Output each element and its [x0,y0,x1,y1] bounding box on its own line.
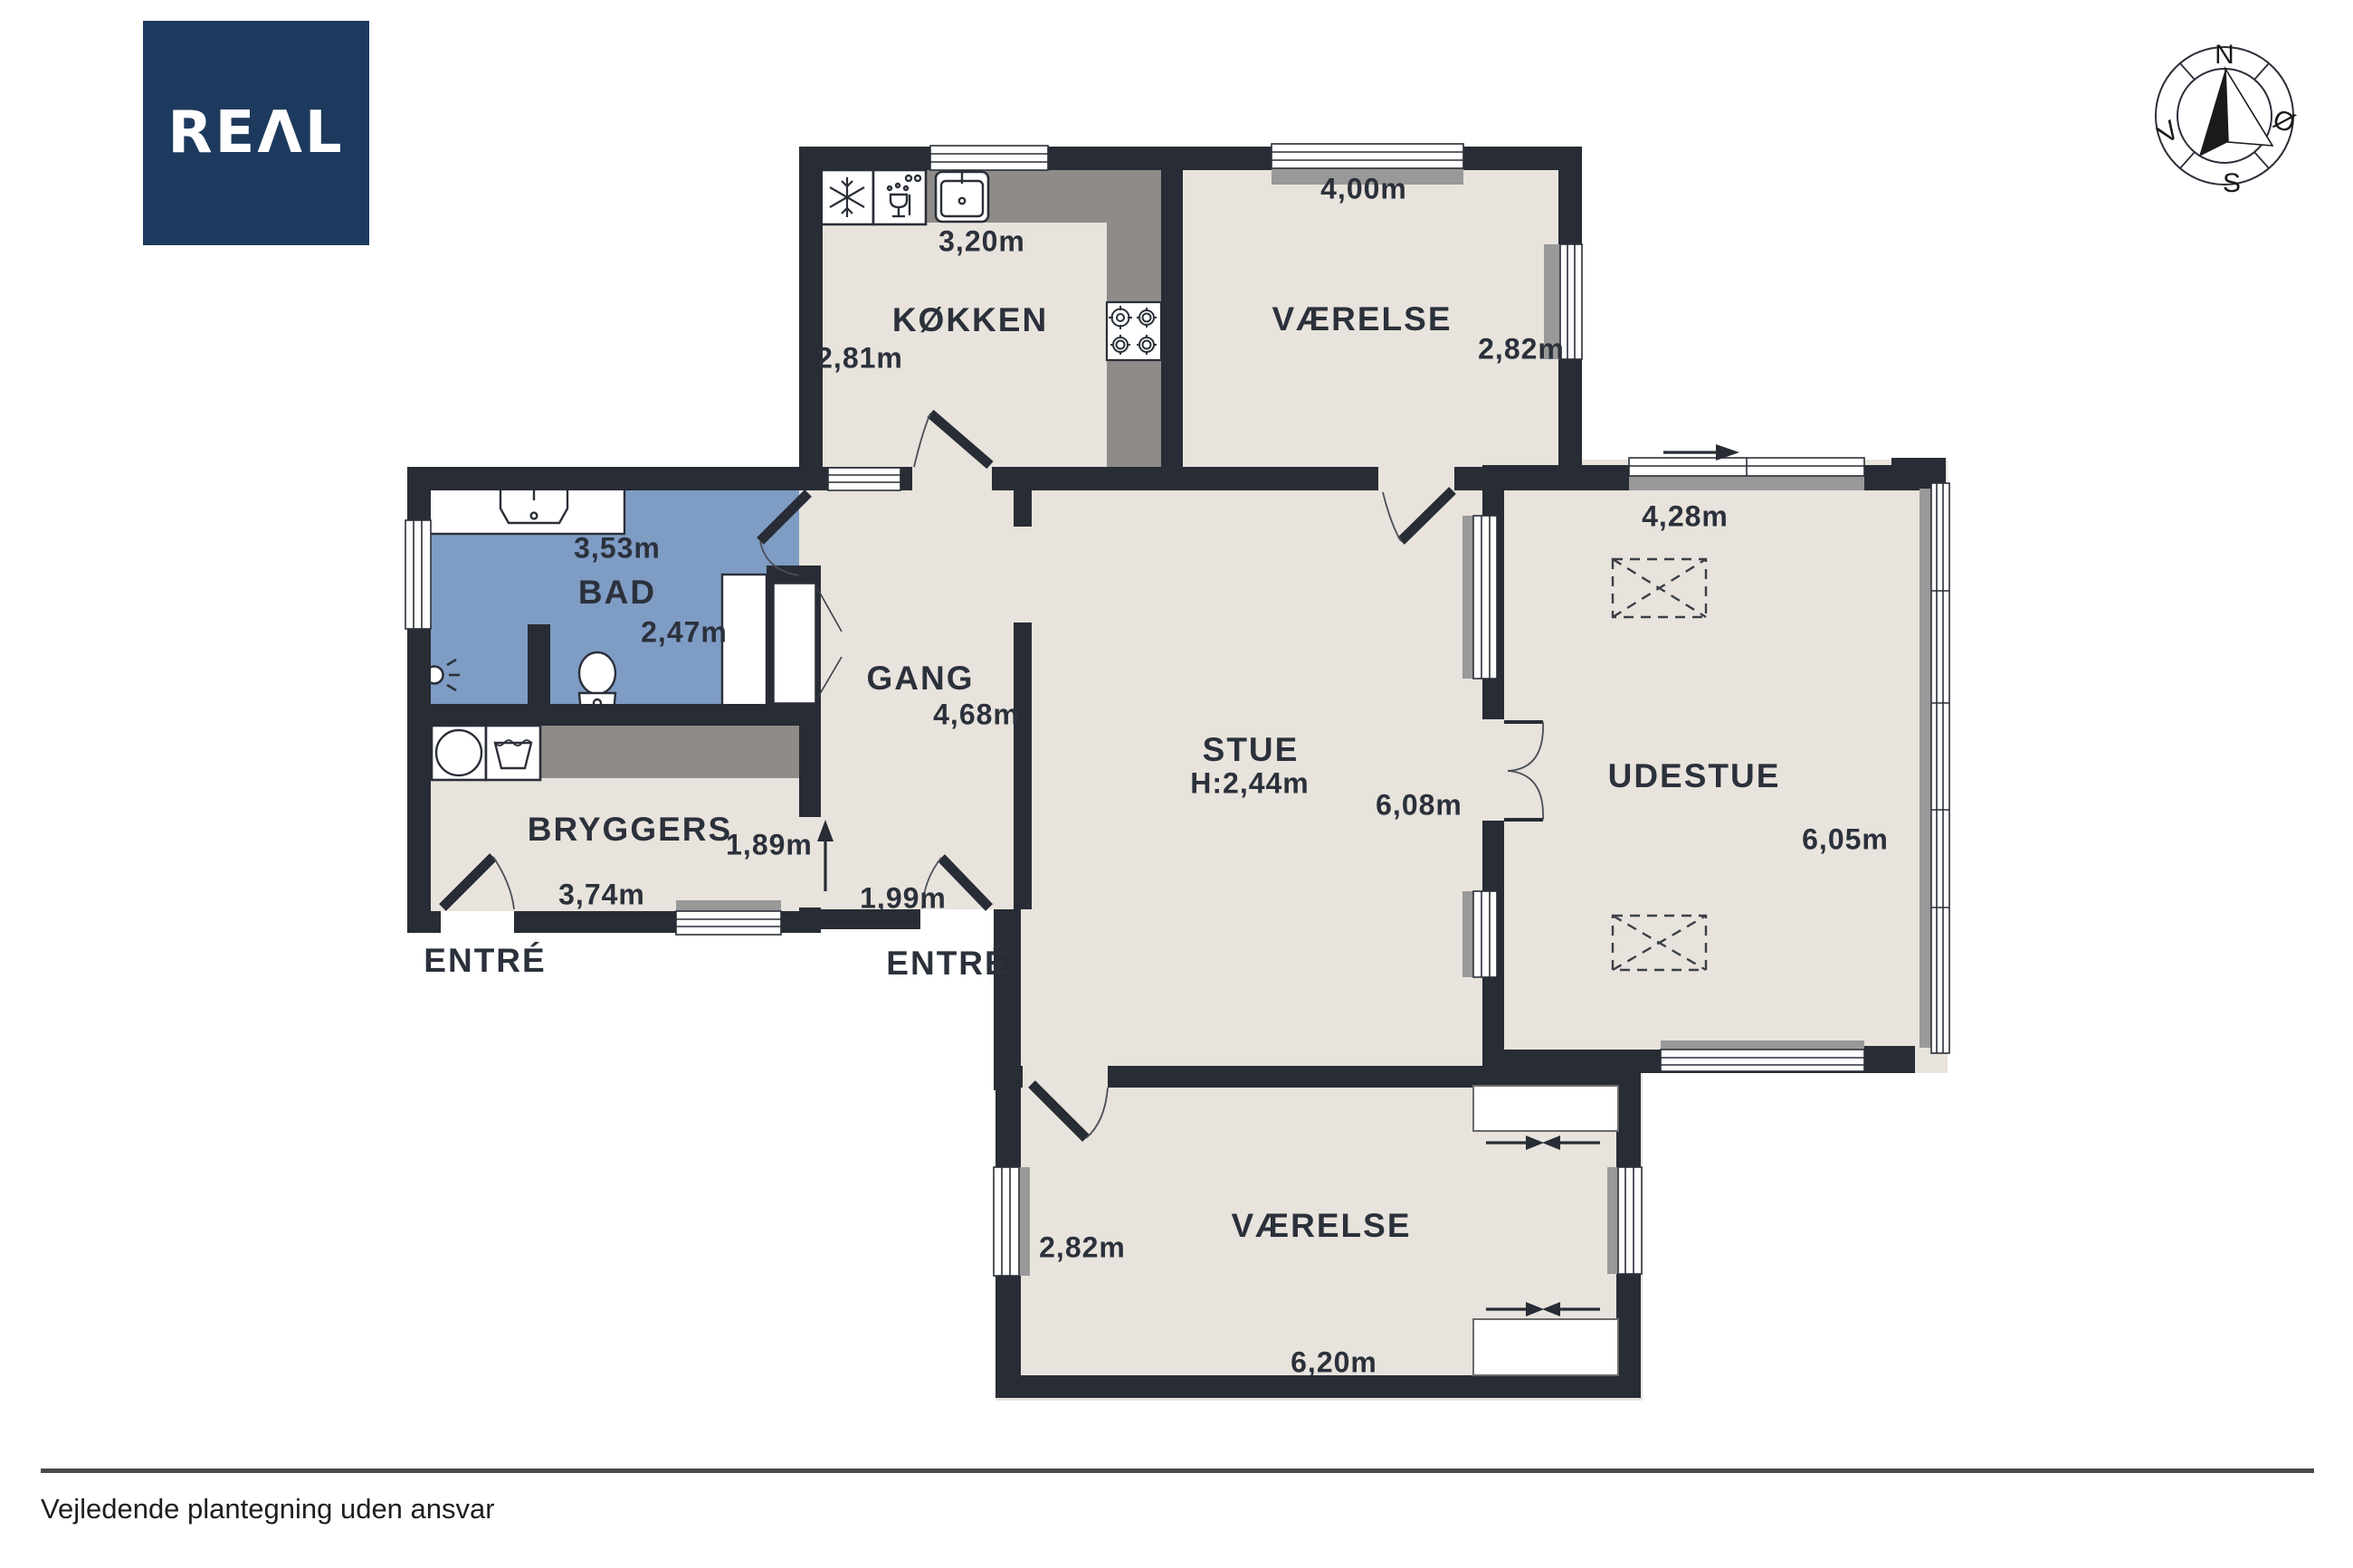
wall-gang-stue [1014,622,1032,909]
window-bad-left [405,520,431,629]
window-gang-top [828,468,900,490]
dim-gang-entry: 1,99m [860,882,947,916]
wall-annex-bottom-left [407,911,441,933]
floorplan-drawing: N Ø S V [0,0,2353,1568]
toilet-icon [579,652,615,713]
window-udestue-bottom [1661,1041,1864,1071]
dim-stue-height: H:2,44m [1190,767,1310,801]
label-entre-right: ENTRÉ [886,945,1008,983]
room-label-bryggers: BRYGGERS [528,811,732,849]
room-label-vaerelse-top: VÆRELSE [1272,300,1452,338]
room-label-kokken: KØKKEN [892,301,1048,339]
floorplan-page: REΛL [0,0,2353,1568]
wall-bad-bryggers [407,704,799,726]
window-vb-left [994,1167,1030,1276]
room-label-gang: GANG [867,660,975,698]
dim-stue-width: 6,08m [1376,789,1462,822]
dim-vt-width: 4,00m [1320,173,1407,206]
exterior-notch [799,909,995,1090]
wall-kitchen-vaerelse [1161,168,1183,469]
dim-vb-width: 6,20m [1291,1346,1377,1380]
footer-divider [41,1468,2314,1473]
dim-vb-depth: 2,82m [1039,1231,1126,1265]
footer-disclaimer: Vejledende plantegning uden ansvar [41,1493,495,1525]
dim-kokken-depth: 2,81m [816,342,903,375]
wall-annex-top [407,467,821,490]
room-label-bad: BAD [578,574,656,612]
label-entre-left: ENTRÉ [424,942,546,980]
dim-vt-depth: 2,82m [1478,333,1565,366]
wall-stue-left [994,909,1021,1090]
laundry-sink-icon [486,726,540,780]
stove-icon [1107,302,1161,360]
window-udestue-right [1920,483,1949,1053]
dim-bryggers-width: 3,74m [558,879,645,912]
window-stue-udestue-lower [1462,891,1497,977]
wall-bad-partition [528,624,550,704]
window-vb-right [1607,1167,1642,1274]
opening-kitchen [912,465,992,492]
dim-udestue-depth: 6,05m [1802,823,1889,857]
window-stue-udestue-upper [1462,516,1497,679]
compass-label-south: S [2223,168,2241,198]
room-label-udestue: UDESTUE [1608,757,1781,795]
window-udestue-top [1629,458,1864,490]
dim-bad-depth: 2,47m [641,616,728,650]
opening-entre-left [441,911,514,935]
window-bryggers-bottom [676,900,781,935]
wall-udestue-corner-se [1864,1046,1915,1073]
window-kitchen-top [930,146,1048,170]
opening-stue-udestue [1481,719,1506,821]
wall-top-main [799,147,1582,170]
closet-bottom [1473,1319,1618,1375]
dim-gang-length: 4,68m [933,698,1020,732]
compass-rose: N Ø S V [2153,40,2300,198]
wall-kitchen-left [799,147,823,490]
washing-machine-icon [432,726,486,780]
room-label-stue: STUE [1203,731,1300,769]
wall-gang-stue-stub [1014,490,1032,527]
bathroom-cabinet [722,575,767,706]
dim-kokken-width: 3,20m [938,225,1025,259]
dim-bad-width: 3,53m [574,532,661,565]
wall-bryggers-corner [799,908,821,933]
dim-bryggers-opening: 1,89m [726,829,813,862]
freezer-icon [821,170,873,224]
wall-bryggers-right [799,704,821,817]
compass-label-north: N [2215,40,2234,70]
kitchen-sink-icon [936,166,988,222]
opening-vaerelse-top [1378,465,1454,492]
closet-top [1473,1086,1618,1131]
bryggers-fixtures [432,726,540,780]
dishwasher-icon [873,170,926,224]
dim-udestue-width: 4,28m [1642,500,1729,534]
room-label-vaerelse-bottom: VÆRELSE [1231,1207,1411,1245]
